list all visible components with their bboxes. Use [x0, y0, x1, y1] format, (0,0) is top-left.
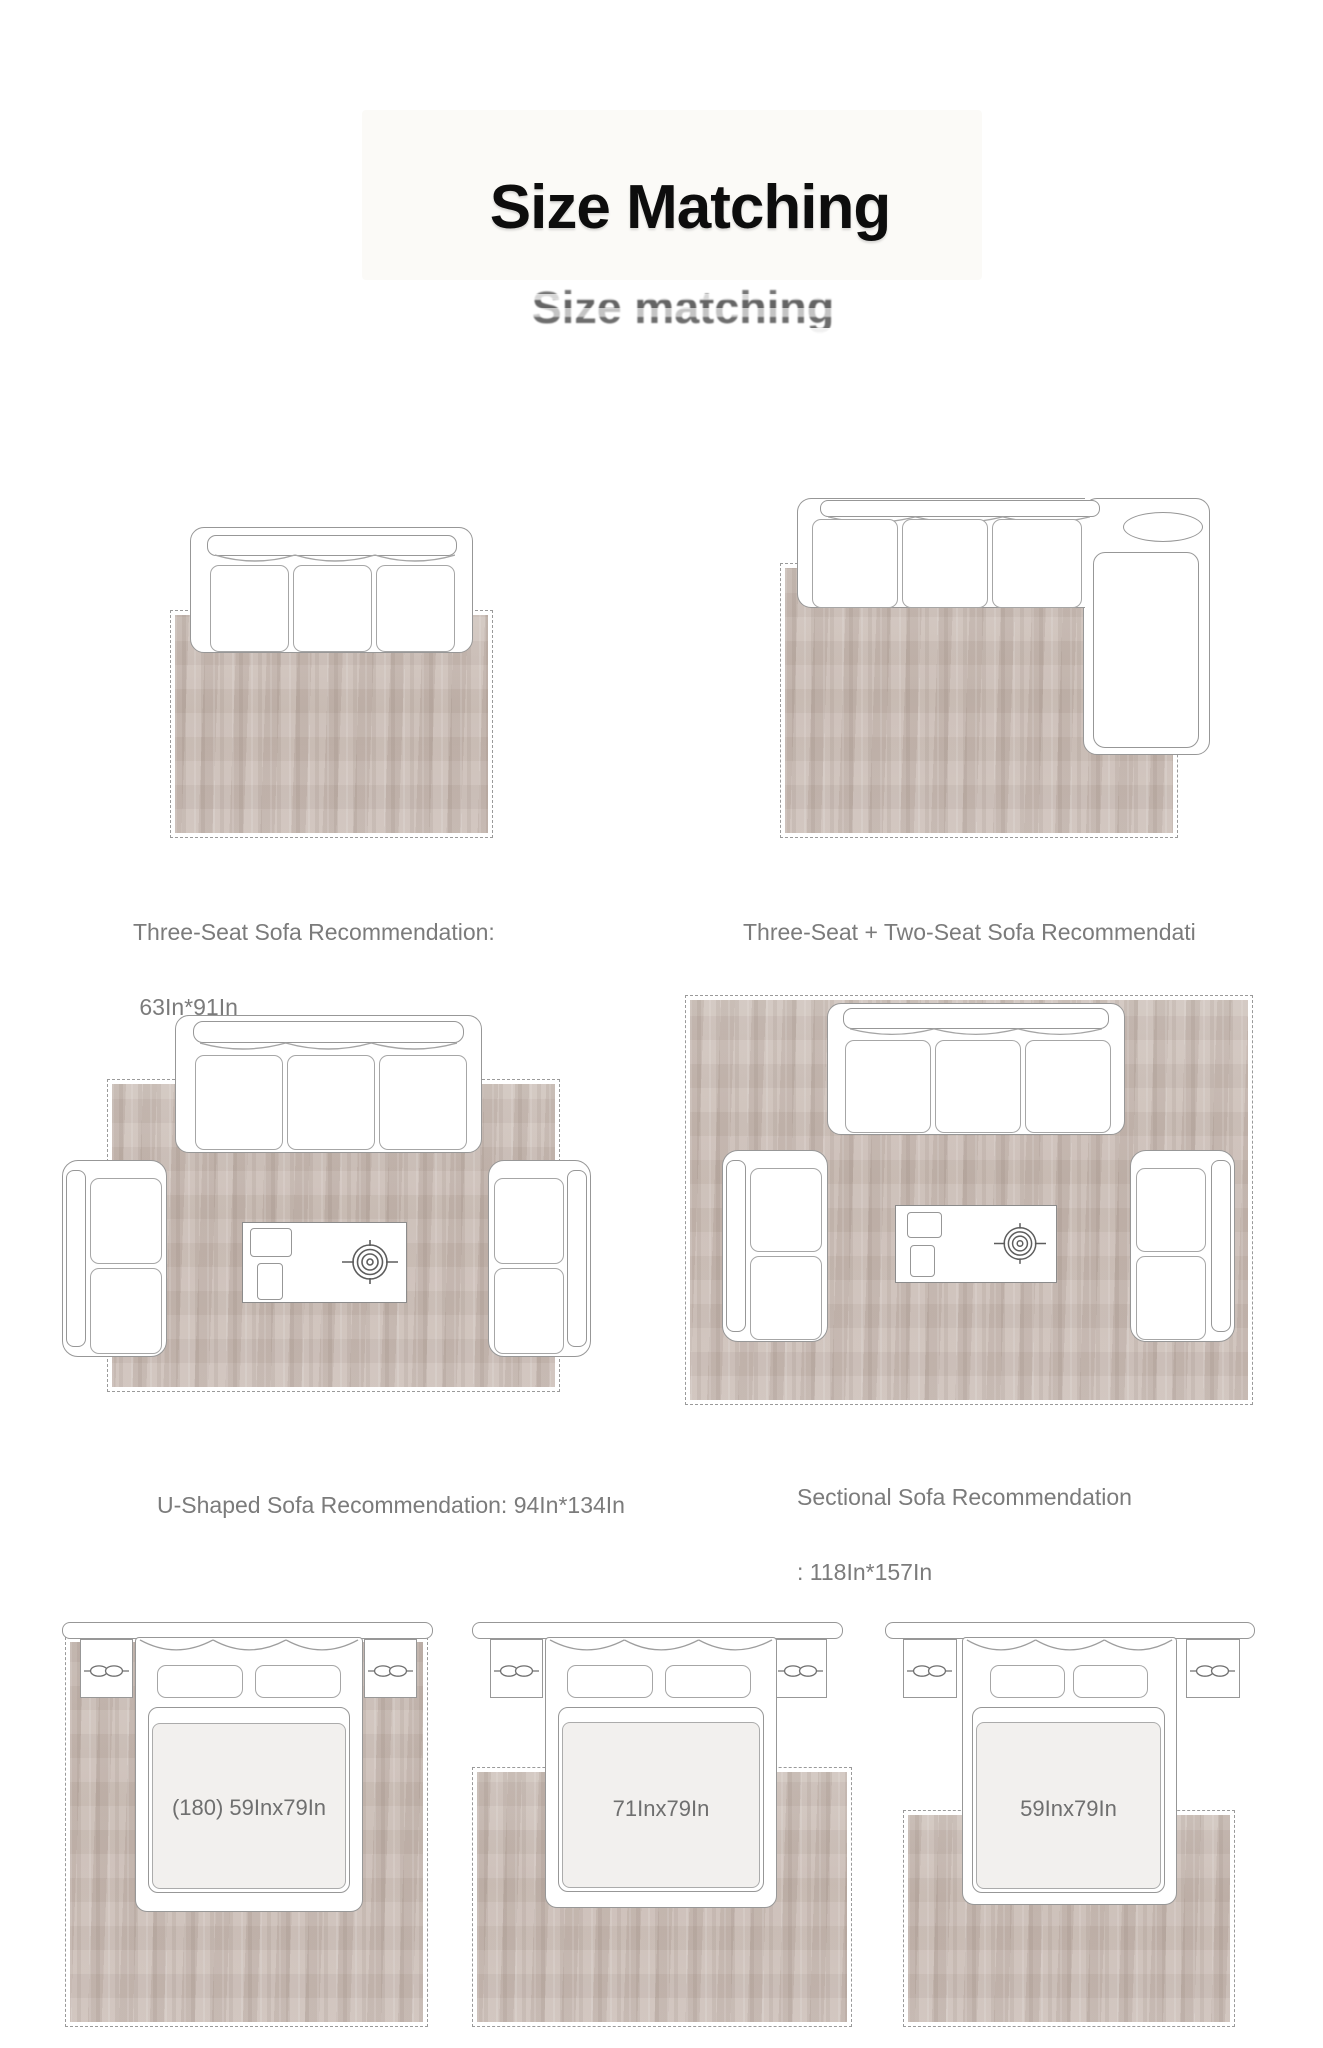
seat-cushion	[90, 1268, 162, 1354]
pillow	[1073, 1665, 1148, 1698]
seat-cushion	[1136, 1168, 1206, 1252]
loveseat-backrest	[567, 1170, 587, 1347]
target-plant-icon	[994, 1221, 1046, 1266]
caption-line: U-Shaped Sofa Recommendation: 94In*134In	[157, 1493, 625, 1518]
seat-cushion	[494, 1178, 564, 1264]
seat-cushion	[750, 1256, 822, 1340]
drawer-handle-icon	[84, 1663, 129, 1679]
diagram-caption: U-Shaped Sofa Recommendation: 94In*134In	[157, 1443, 625, 1568]
seat-cushion	[90, 1178, 162, 1264]
table-book	[257, 1263, 283, 1300]
seat-cushion	[210, 565, 289, 652]
seat-cushion	[293, 565, 372, 652]
rug-size-label: (180) 59Inx79In	[148, 1795, 350, 1821]
chaise-seat	[1093, 552, 1199, 748]
target-plant-icon	[342, 1238, 398, 1286]
caption-line: : 118In*157In	[797, 1560, 1132, 1585]
page-title: Size Matching	[490, 172, 890, 244]
pillow	[567, 1665, 653, 1698]
seat-cushion	[287, 1055, 375, 1150]
scallop-arcs-icon	[200, 1041, 457, 1053]
seat-cushion	[1136, 1256, 1206, 1340]
pillow	[665, 1665, 751, 1698]
caption-line: Three-Seat + Two-Seat Sofa Recommendati	[743, 920, 1196, 945]
seat-cushion	[845, 1040, 931, 1133]
size-matching-infographic: Size Matching Size matching Three-Seat S…	[0, 0, 1323, 2048]
pillow	[990, 1665, 1065, 1698]
rug-size-label: 59Inx79In	[972, 1796, 1165, 1822]
curtain-scallop-icon	[548, 1639, 774, 1656]
seat-cushion	[376, 565, 455, 652]
drawer-handle-icon	[778, 1663, 823, 1679]
pillow	[157, 1665, 243, 1698]
loveseat-backrest	[1211, 1160, 1231, 1332]
pillow	[255, 1665, 341, 1698]
caption-line: Three-Seat Sofa Recommendation:	[133, 920, 495, 945]
seat-cushion	[935, 1040, 1021, 1133]
seat-cushion	[379, 1055, 467, 1150]
scallop-arcs-icon	[850, 1027, 1102, 1038]
table-tray	[907, 1212, 942, 1238]
caption-line: Sectional Sofa Recommendation	[797, 1485, 1132, 1510]
sofa-backrest	[193, 1021, 464, 1043]
table-book	[910, 1245, 935, 1277]
seat-cushion	[992, 519, 1082, 608]
loveseat-backrest	[66, 1170, 86, 1347]
curtain-scallop-icon	[138, 1639, 360, 1656]
sofa-backrest	[843, 1008, 1109, 1029]
scallop-arcs-icon	[215, 553, 455, 565]
round-pillow	[1123, 512, 1203, 542]
curtain-scallop-icon	[965, 1639, 1174, 1656]
ghost-subtitle: Size matching	[532, 282, 835, 334]
seat-cushion	[494, 1268, 564, 1354]
drawer-handle-icon	[907, 1663, 952, 1679]
drawer-handle-icon	[494, 1663, 539, 1679]
loveseat-backrest	[726, 1160, 746, 1332]
seat-cushion	[750, 1168, 822, 1252]
table-tray	[250, 1228, 292, 1257]
diagram-caption: Sectional Sofa Recommendation : 118In*15…	[797, 1435, 1132, 1635]
seat-cushion	[812, 519, 898, 608]
drawer-handle-icon	[1190, 1663, 1235, 1679]
seat-cushion	[195, 1055, 283, 1150]
rug-size-label: 71Inx79In	[558, 1796, 764, 1822]
seat-cushion	[902, 519, 988, 608]
seat-cushion	[1025, 1040, 1111, 1133]
drawer-handle-icon	[368, 1663, 413, 1679]
